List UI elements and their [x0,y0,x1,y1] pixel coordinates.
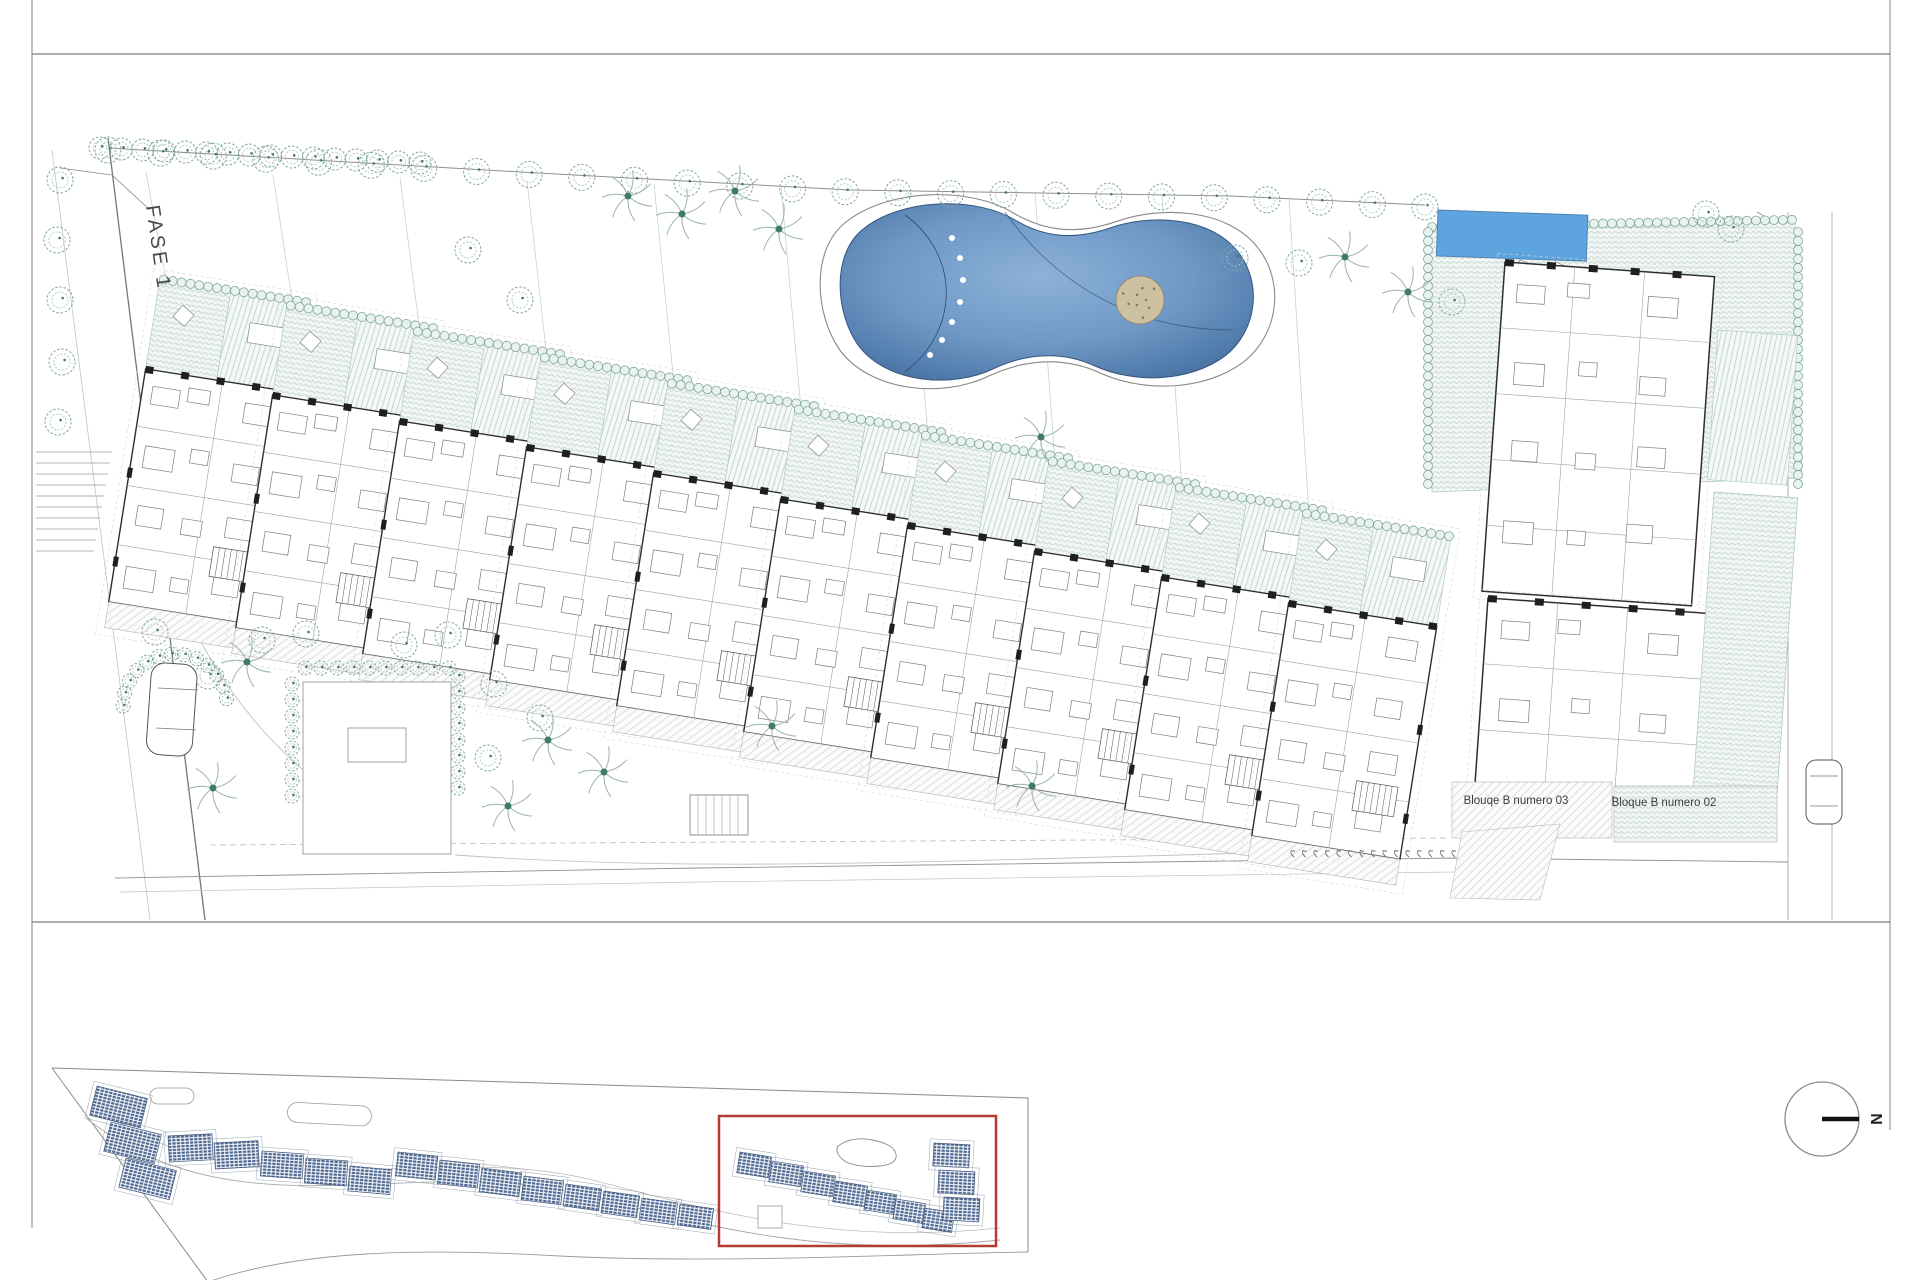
hedge [1794,480,1803,489]
furniture [150,386,180,408]
tree-icon [122,674,136,688]
furniture [1151,713,1180,737]
furniture [942,675,964,694]
palm-tree-icon [482,780,532,831]
furniture [951,605,971,622]
tree-icon [302,147,324,169]
column [597,455,606,463]
lap-pool [1436,210,1588,261]
furniture [1323,753,1345,772]
tree-icon [140,655,154,669]
tree-icon [281,146,303,168]
key-building-roof [479,1168,522,1197]
furniture [1139,774,1172,800]
plot-divider [400,178,420,332]
furniture [443,501,463,518]
tree-icon [388,151,410,173]
pool-step-marker [960,277,966,283]
furniture [1578,362,1597,377]
furniture [824,579,844,596]
tree-icon [832,179,858,205]
furniture [358,490,386,512]
island-texture [1148,307,1150,309]
furniture [314,414,338,431]
column [1288,600,1297,608]
furniture [277,412,307,434]
hedge [1424,399,1433,408]
key-building [256,1147,308,1183]
garden-terrace [400,330,486,432]
furniture [516,583,545,607]
hedge [1424,345,1433,354]
hedge [1424,435,1433,444]
column [308,398,317,406]
furniture [142,446,175,472]
furniture [269,472,302,498]
island-texture [1142,317,1144,319]
furniture [1166,594,1196,616]
column [689,476,698,484]
furniture [485,516,513,538]
column [943,528,952,536]
island-texture [1136,294,1138,296]
hedge [1424,354,1433,363]
plot-divider [654,184,674,384]
column [1161,574,1170,582]
furniture [785,516,815,538]
column [1488,595,1497,603]
column [1535,598,1544,606]
car [146,662,198,757]
furniture [1332,683,1352,700]
column [1675,608,1684,616]
hedge [1424,273,1433,282]
column [724,481,733,489]
key-building-roof [737,1152,772,1178]
hedge [1680,217,1689,226]
tree-icon [285,725,299,739]
tree-icon [1286,250,1312,276]
label-terrace [1614,786,1777,842]
key-building [934,1166,980,1199]
plot-divider [527,181,547,358]
phase-label: FASE 1 [141,204,175,292]
site-plan-canvas: FASE 1 Blouqe B numero 03 Bloque B numer… [0,0,1920,1280]
hedge [1779,215,1788,224]
furniture [377,618,410,644]
tree-icon [451,701,465,715]
column [379,409,388,417]
furniture [250,592,283,618]
column [1505,259,1514,267]
tree-icon [1307,189,1333,215]
key-building-roof [563,1184,602,1211]
island-texture [1122,292,1124,294]
tree-icon [285,741,299,755]
key-building [475,1164,527,1202]
column [1197,580,1206,588]
furniture [1367,751,1398,775]
garden-terrace [654,382,740,484]
tree-icon [177,648,191,662]
furniture [904,602,937,628]
column [633,461,642,469]
furniture [815,649,837,668]
block-label-02: Bloque B numero 02 [1612,797,1717,809]
stairs-block [690,795,748,835]
furniture [561,597,583,616]
hedge [1794,273,1803,282]
hedge [1424,327,1433,336]
block-label-03: Blouqe B numero 03 [1464,795,1569,807]
hedge [1794,417,1803,426]
column [1581,602,1590,610]
hedge [1424,336,1433,345]
furniture [404,438,434,460]
tree-icon [285,677,299,691]
furniture [135,505,164,529]
key-building-roof [214,1141,259,1169]
furniture [1575,453,1596,470]
key-building [343,1162,396,1199]
furniture [1647,296,1678,318]
parking-tick [1417,850,1421,857]
pool-step-marker [939,337,945,343]
furniture [1158,654,1191,680]
hedge [1707,217,1716,226]
furniture [1502,521,1533,545]
furniture [1558,619,1581,635]
tree-icon [569,164,595,190]
key-building-roof [639,1198,678,1225]
hedge [1794,237,1803,246]
hedge [1626,219,1635,228]
island-texture [1127,303,1129,305]
key-pond [287,1102,372,1126]
hedge [1725,217,1734,226]
tree-icon [451,765,465,779]
column [780,496,789,504]
garden-terrace [908,434,994,536]
pool-island [1116,276,1164,324]
column [1359,611,1368,619]
pool-step-marker [927,352,933,358]
column [907,522,916,530]
pool-step-marker [957,299,963,305]
tree-icon [1412,194,1438,220]
key-building-roof [260,1151,304,1179]
furniture [1058,759,1078,776]
furniture [677,681,697,698]
furniture [650,550,683,576]
furniture [1513,363,1544,387]
furniture [777,576,810,602]
side-garden [1693,492,1797,793]
column [1070,554,1079,562]
key-building-roof [938,1170,975,1195]
column [1034,548,1043,556]
hedge [1794,453,1803,462]
key-plaza [758,1206,782,1228]
tree-icon [1254,187,1280,213]
tree-icon [152,650,166,664]
hedge [1424,264,1433,273]
furniture [1203,596,1227,613]
furniture [897,661,926,685]
pool-step-marker [949,235,955,241]
tree-icon [622,167,648,193]
tree-icon [451,733,465,747]
hedge [1424,291,1433,300]
key-pond [150,1088,194,1104]
column [816,502,825,510]
plot-divider [1289,199,1309,514]
hedge [1794,390,1803,399]
tree-icon [451,749,465,763]
furniture [1078,631,1098,648]
column [435,424,444,432]
garden-terrace [1035,460,1121,562]
hedge [1424,453,1433,462]
furniture [1120,646,1148,668]
key-building-roof [769,1161,804,1187]
column [1395,617,1404,625]
furniture [612,542,640,564]
furniture [822,518,846,535]
furniture [1571,699,1590,714]
furniture [570,527,590,544]
column [851,507,860,515]
bloque-b-building [1466,589,1731,812]
furniture [1626,524,1653,544]
tree-icon [49,349,75,375]
plot-divider [273,175,293,306]
island-texture [1145,299,1147,301]
hedge [1424,417,1433,426]
hedge [1424,228,1433,237]
hedge [1752,216,1761,225]
hedge [1794,300,1803,309]
furniture [885,722,918,748]
island-texture [1136,304,1138,306]
hedge [1424,462,1433,471]
tree-icon [1043,182,1069,208]
furniture [739,568,767,590]
furniture [296,603,316,620]
furniture [1196,727,1218,746]
key-building-roof [801,1171,836,1197]
furniture [866,594,894,616]
tree-icon [990,181,1016,207]
key-building-roof [893,1199,926,1223]
hedge [1424,255,1433,264]
north-indicator: N [1785,1082,1884,1156]
key-plan [52,1068,1028,1280]
furniture [231,464,259,486]
column [470,429,479,437]
furniture [441,440,465,457]
hedge [1788,215,1797,224]
drawing-sheet: FASE 1 Blouqe B numero 03 Bloque B numer… [0,0,1920,1280]
tree-icon [201,659,215,673]
north-label: N [1867,1113,1884,1125]
furniture [262,531,291,555]
furniture [307,545,329,564]
hedge [1734,216,1743,225]
furniture [568,466,592,483]
garden-path [455,852,1290,864]
furniture [1293,620,1323,642]
furniture [123,566,156,592]
furniture [1076,570,1100,587]
furniture [1312,811,1332,828]
garden-terrace [1162,486,1248,588]
hedge [1608,219,1617,228]
furniture [1647,634,1678,656]
furniture [912,542,942,564]
tree-icon [516,162,542,188]
column [1630,268,1639,276]
furniture [1012,748,1045,774]
furniture [1567,283,1590,299]
furniture [770,635,799,659]
column [760,487,769,495]
hedge [1794,435,1803,444]
furniture [189,449,209,466]
key-building [391,1148,442,1185]
key-building-roof [601,1191,640,1218]
hedge [1770,216,1779,225]
key-road [96,1106,1000,1233]
key-building [433,1156,484,1193]
hedge [1794,309,1803,318]
tree-icon [464,158,490,184]
furniture [1516,285,1545,305]
hedge [1424,471,1433,480]
column [1547,262,1556,270]
hedge [1590,219,1599,228]
furniture [688,623,710,642]
hedge [1794,444,1803,453]
furniture [643,609,672,633]
hedge [1794,399,1803,408]
pool-step-marker [957,255,963,261]
key-building-roof [943,1197,980,1222]
hedge [1424,480,1433,489]
pool-step-marker [949,319,955,325]
column [1141,565,1150,573]
furniture [695,492,719,509]
furniture [316,475,336,492]
garden-terrace [527,356,613,458]
hedge [1743,216,1752,225]
furniture [1637,447,1666,469]
key-boundary [208,1252,1028,1280]
leader-line [60,168,150,210]
hedge [1794,408,1803,417]
tree-icon [779,176,805,202]
furniture [758,696,791,722]
hedge [1662,218,1671,227]
hedge [1794,291,1803,300]
furniture [1185,785,1205,802]
tree-icon [1149,184,1175,210]
furniture [1285,680,1318,706]
palm-tree-icon [753,203,803,254]
column [1105,559,1114,567]
hedge [1794,228,1803,237]
tree-icon [45,409,71,435]
hedge [1794,462,1803,471]
furniture [1069,701,1091,720]
furniture [1374,698,1402,720]
hedge [1424,363,1433,372]
column [1014,539,1023,547]
column [526,444,535,452]
palm-tree-icon [1319,231,1369,282]
key-pool [837,1139,896,1167]
tree-icon [285,773,299,787]
bloque-b-complex [1424,210,1843,842]
tree-icon [455,237,481,263]
column [343,403,352,411]
furniture [1385,637,1418,661]
furniture [1330,622,1354,639]
furniture [550,655,570,672]
tree-icon [1201,185,1227,211]
column [887,513,896,521]
parking-tick [1429,850,1433,857]
hedge [1424,444,1433,453]
boundary-bottom-2 [120,872,1455,892]
column [978,533,987,541]
furniture [697,553,717,570]
bloque-b-building [1473,253,1723,614]
furniture [804,707,824,724]
furniture [931,733,951,750]
furniture [1567,530,1586,545]
key-building [164,1129,218,1166]
hedge [1761,216,1770,225]
tree-icon [195,663,221,689]
hedge [1424,408,1433,417]
tree-icon [1096,183,1122,209]
tree-icon [285,709,299,723]
furniture [1031,628,1064,654]
tree-icon [358,152,384,178]
column [272,392,281,400]
hedge [1671,218,1680,227]
hedge [1794,318,1803,327]
column [1232,585,1241,593]
key-building [673,1199,719,1234]
hedge [1424,237,1433,246]
hedge [1635,218,1644,227]
main-site-plan: FASE 1 Blouqe B numero 03 Bloque B numer… [36,137,1842,920]
furniture [658,490,688,512]
column [1428,622,1437,630]
furniture [1511,441,1538,463]
hedge [1424,246,1433,255]
key-building-roof [437,1160,479,1188]
column [1324,606,1333,614]
parking-tick [1406,850,1410,857]
hedge [1794,282,1803,291]
tree-icon [507,287,533,313]
building-walls [1482,262,1715,606]
tree-icon [217,143,239,165]
key-building-roof [348,1166,392,1195]
